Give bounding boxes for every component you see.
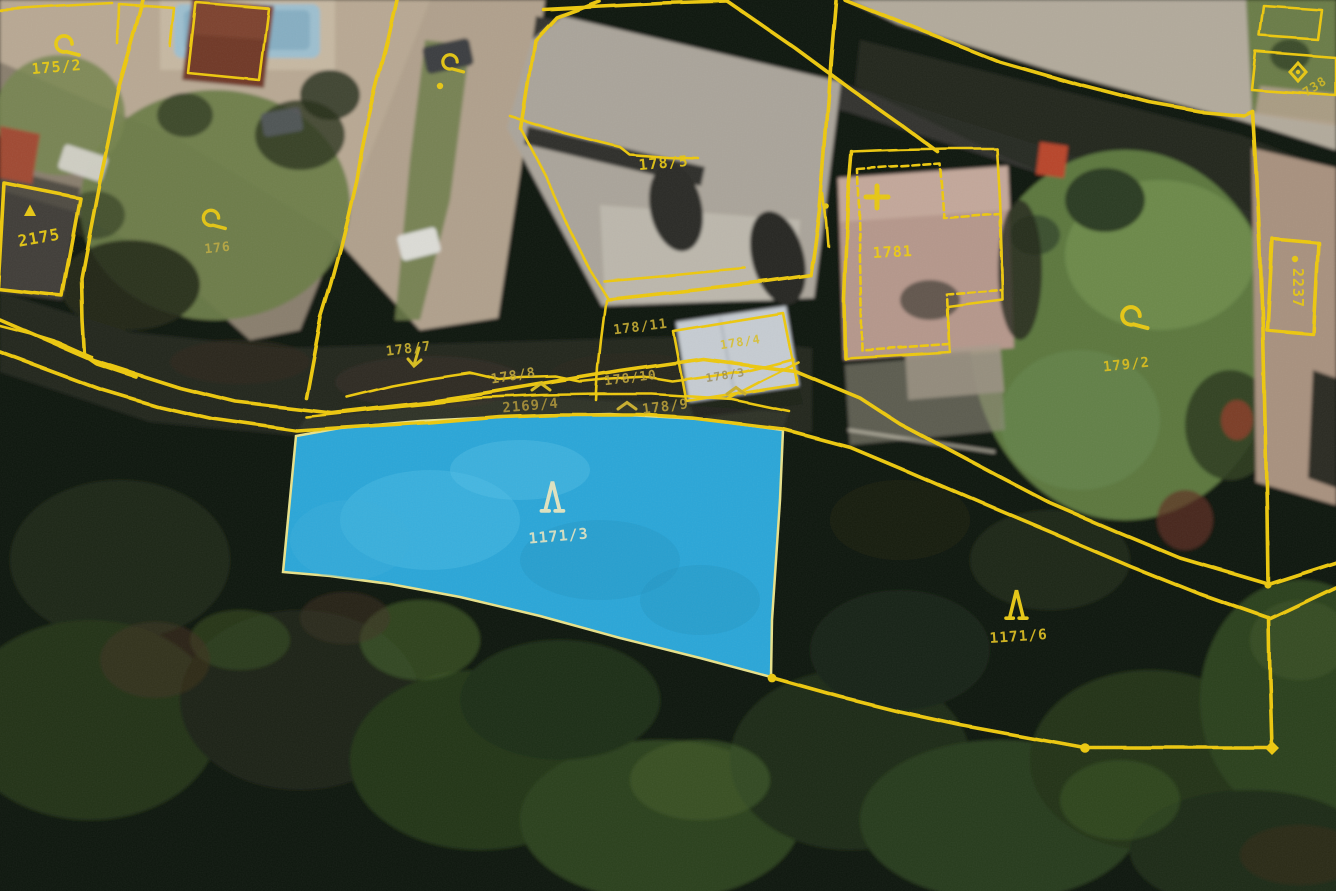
cadastral-map-image: 175/22175176178/5178/11178/4178/31781178…: [0, 0, 1336, 891]
photo-grain-overlay: [0, 0, 1336, 891]
map-svg: 175/22175176178/5178/11178/4178/31781178…: [0, 0, 1336, 891]
